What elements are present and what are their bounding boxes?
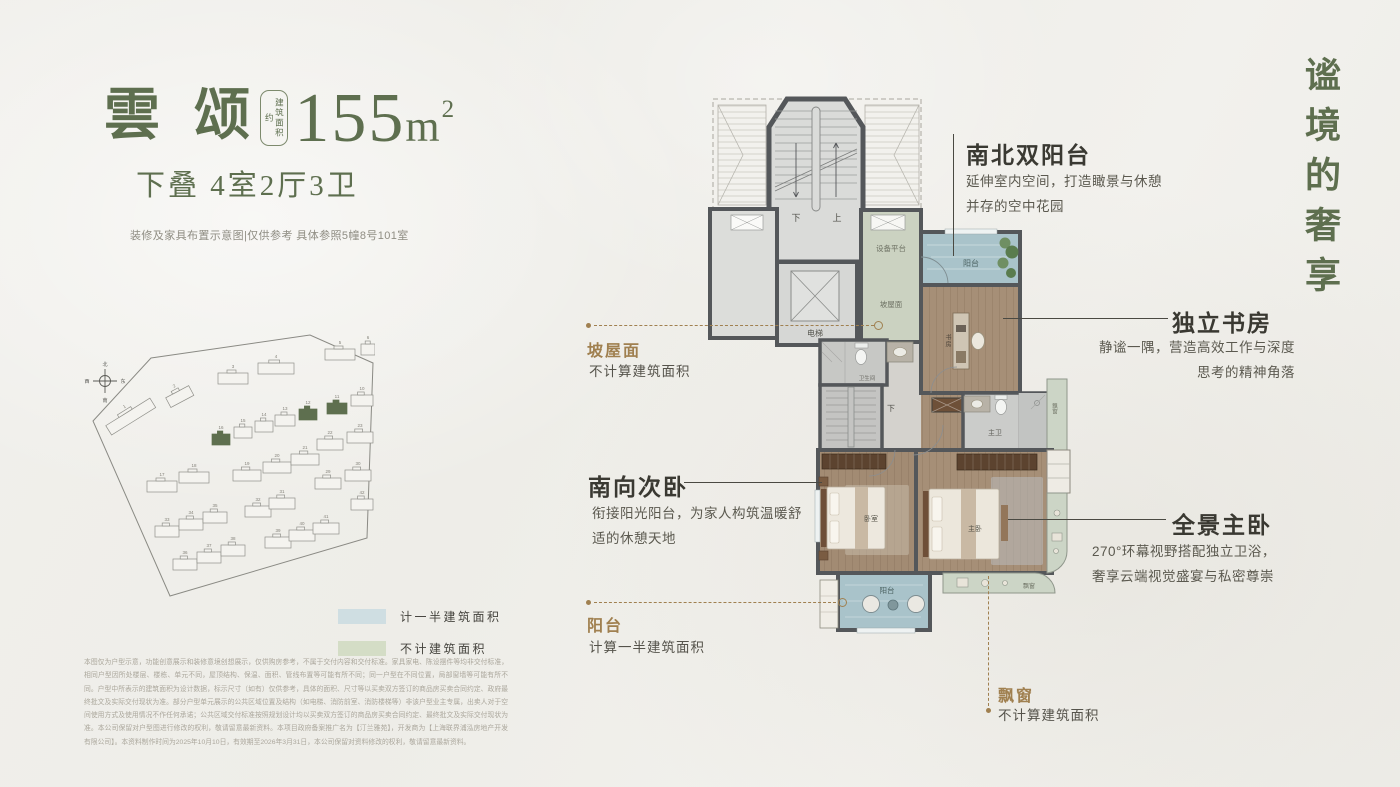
callout-desc-half-balcony: 计算一半建筑面积 (589, 636, 705, 656)
window (815, 490, 820, 542)
svg-text:卫生间: 卫生间 (859, 374, 876, 382)
svg-text:35: 35 (212, 503, 218, 508)
svg-text:书房: 书房 (944, 333, 951, 348)
svg-text:39: 39 (275, 528, 281, 533)
svg-text:飘窗: 飘窗 (1023, 582, 1035, 590)
stairwell: 下 上 (769, 99, 863, 262)
svg-text:卧室: 卧室 (864, 514, 878, 523)
area-number: 155 (294, 80, 405, 157)
legend-swatch-blue (338, 609, 386, 624)
svg-text:5: 5 (339, 340, 342, 345)
desc-line: 并存的空中花园 (966, 195, 1162, 220)
legend-swatch-green (338, 641, 386, 656)
headboard (821, 489, 827, 547)
callout-desc-slope-roof: 不计算建筑面积 (589, 360, 691, 380)
compass-icon: 北 南 西 东 (84, 361, 125, 404)
legend-item-half-area: 计一半建筑面积 (338, 608, 502, 625)
svg-text:23: 23 (357, 423, 363, 428)
svg-text:37: 37 (206, 543, 212, 548)
svg-text:10: 10 (359, 386, 365, 391)
east-closet (1047, 450, 1070, 493)
svg-text:14: 14 (261, 412, 267, 417)
site-plan-buildings: 1234561011121314151622231718192021293033… (101, 335, 375, 570)
reference-note: 装修及家具布置示意图|仅供参考 具体参照5幢8号101室 (130, 227, 409, 243)
svg-text:38: 38 (230, 536, 236, 541)
project-name: 雲 颂 (104, 88, 260, 144)
callout-title-south-bedroom: 南向次卧 (588, 468, 688, 502)
callout-desc-north-south-balcony: 延伸室内空间，打造瞰景与休憩 并存的空中花园 (966, 170, 1162, 220)
bay-window-east: 飘窗 (1047, 379, 1067, 450)
table (888, 600, 898, 610)
svg-text:40: 40 (299, 521, 305, 526)
svg-text:36: 36 (182, 550, 188, 555)
cabinet (820, 580, 838, 628)
north-balcony: 阳台 (921, 229, 1020, 285)
svg-text:电梯: 电梯 (807, 328, 823, 338)
study-room: 书房 (921, 285, 1020, 393)
svg-text:21: 21 (302, 445, 308, 450)
svg-text:11: 11 (335, 394, 340, 399)
legend-label: 不计建筑面积 (400, 640, 487, 657)
callout-ring-half-balcony (838, 598, 847, 607)
lower-stairs: 下 (820, 385, 895, 450)
area-superscript: 2 (442, 96, 457, 123)
svg-text:下: 下 (887, 404, 895, 413)
svg-text:15: 15 (240, 418, 246, 423)
bench (1001, 505, 1008, 541)
svg-text:西: 西 (84, 379, 89, 385)
master-bathroom: 主卫 (963, 393, 1047, 450)
callout-desc-south-bedroom: 衔接阳光阳台，为家人构筑温暖舒 适的休憩天地 (592, 502, 802, 552)
toilet-tank (855, 343, 868, 348)
svg-text:17: 17 (159, 472, 165, 477)
svg-text:34: 34 (188, 510, 194, 515)
callout-title-north-south-balcony: 南北双阳台 (966, 136, 1091, 170)
svg-text:12: 12 (305, 400, 311, 405)
chair (863, 596, 880, 613)
bathroom: 卫生间 (820, 340, 887, 385)
desc-line: 适的休憩天地 (592, 527, 802, 552)
svg-text:18: 18 (191, 463, 197, 468)
callout-dot-slope-roof (586, 323, 591, 328)
callout-line-north-south-balcony (953, 134, 954, 256)
svg-text:南: 南 (102, 397, 107, 404)
desc-line: 静谧一隅，营造高效工作与深度 (1025, 336, 1295, 361)
callout-dash-bay-window (988, 576, 989, 706)
svg-text:2: 2 (172, 383, 177, 389)
callout-title-bay-window: 飘窗 (998, 682, 1034, 706)
toilet (856, 350, 867, 365)
svg-text:飘窗: 飘窗 (1051, 403, 1058, 416)
svg-text:阳台: 阳台 (963, 258, 979, 268)
desc-line: 270°环幕视野搭配独立卫浴， (1092, 540, 1276, 565)
callout-desc-bay-window: 不计算建筑面积 (998, 704, 1100, 724)
terrace-room (710, 209, 777, 338)
callout-dash-slope-roof (594, 325, 874, 326)
svg-text:22: 22 (327, 430, 333, 435)
legend-label: 计一半建筑面积 (400, 608, 502, 625)
svg-text:下: 下 (791, 213, 800, 223)
svg-text:6: 6 (367, 335, 370, 340)
svg-text:主卧: 主卧 (968, 524, 982, 533)
svg-text:41: 41 (323, 514, 329, 519)
callout-title-half-balcony: 阳台 (587, 612, 623, 636)
svg-text:上: 上 (832, 213, 841, 223)
site-plan: 北 南 西 东 12345610111213141516222317181920… (75, 333, 375, 610)
svg-text:北: 北 (102, 361, 107, 368)
svg-text:29: 29 (325, 469, 331, 474)
callout-dot-bay-window (986, 708, 991, 713)
svg-text:东: 东 (120, 378, 125, 385)
callout-line-south-bedroom (684, 482, 822, 483)
svg-text:阳台: 阳台 (880, 585, 895, 595)
desc-line: 思考的精神角落 (1025, 361, 1295, 386)
shower (1019, 393, 1047, 450)
callout-dash-half-balcony (594, 602, 836, 603)
svg-text:设备平台: 设备平台 (876, 243, 906, 253)
area-value: 155m2 (294, 88, 456, 150)
svg-text:16: 16 (218, 425, 224, 430)
headboard (923, 491, 929, 557)
bay-window-south: 飘窗 (943, 573, 1055, 593)
chair (908, 596, 925, 613)
svg-text:主卫: 主卫 (988, 428, 1002, 437)
equipment-platform: 设备平台 坡屋面 (861, 210, 921, 342)
elevator: 电梯 (777, 262, 857, 345)
project-title-block: 雲 颂 建筑面积约 155m2 (104, 88, 456, 150)
callout-title-slope-roof: 坡屋面 (587, 337, 641, 361)
chair (972, 333, 985, 350)
callout-ring-slope-roof (874, 321, 883, 330)
legend-item-no-area: 不计建筑面积 (338, 640, 502, 657)
callout-line-master-bedroom (1008, 519, 1166, 520)
svg-text:13: 13 (282, 406, 288, 411)
south-balcony: 阳台 (838, 573, 930, 633)
svg-text:33: 33 (164, 517, 170, 522)
svg-text:4: 4 (275, 354, 278, 359)
callout-title-study: 独立书房 (1172, 304, 1272, 338)
brochure-page: 雲 颂 建筑面积约 155m2 下叠 4室2厅3卫 装修及家具布置示意图|仅供参… (0, 0, 1400, 787)
toilet (996, 400, 1007, 415)
callout-desc-study: 静谧一隅，营造高效工作与深度 思考的精神角落 (1025, 336, 1295, 386)
svg-text:31: 31 (279, 489, 285, 494)
desc-line: 奢享云端视觉盛宴与私密尊崇 (1092, 565, 1276, 590)
area-label-box: 建筑面积约 (260, 90, 288, 146)
window (857, 628, 915, 633)
callout-desc-master-bedroom: 270°环幕视野搭配独立卫浴， 奢享云端视觉盛宴与私密尊崇 (1092, 540, 1276, 590)
callout-dot-half-balcony (586, 600, 591, 605)
tagline-vertical: 谧境的奢享 (1294, 56, 1346, 306)
vanity (887, 342, 913, 362)
callout-line-study (1003, 318, 1168, 319)
svg-text:20: 20 (274, 453, 280, 458)
desc-line: 衔接阳光阳台，为家人构筑温暖舒 (592, 502, 802, 527)
svg-text:32: 32 (255, 497, 261, 502)
area-unit: m (405, 102, 441, 151)
svg-text:3: 3 (232, 364, 235, 369)
svg-text:19: 19 (244, 461, 250, 466)
desc-line: 延伸室内空间，打造瞰景与休憩 (966, 170, 1162, 195)
svg-text:1: 1 (122, 403, 127, 409)
unit-layout-subtitle: 下叠 4室2厅3卫 (136, 162, 359, 204)
svg-text:坡屋面: 坡屋面 (880, 299, 903, 309)
second-bedroom: 卧室 (815, 450, 916, 573)
svg-text:42: 42 (359, 490, 365, 495)
disclaimer-text: 本图仅为户型示意，功能创意展示和装修意境创想展示，仅供购房参考，不属于交付内容和… (84, 656, 508, 749)
callout-title-master-bedroom: 全景主卧 (1172, 506, 1272, 540)
svg-text:30: 30 (355, 461, 361, 466)
bay-window-east-lower (1047, 493, 1067, 573)
closet (932, 398, 962, 412)
